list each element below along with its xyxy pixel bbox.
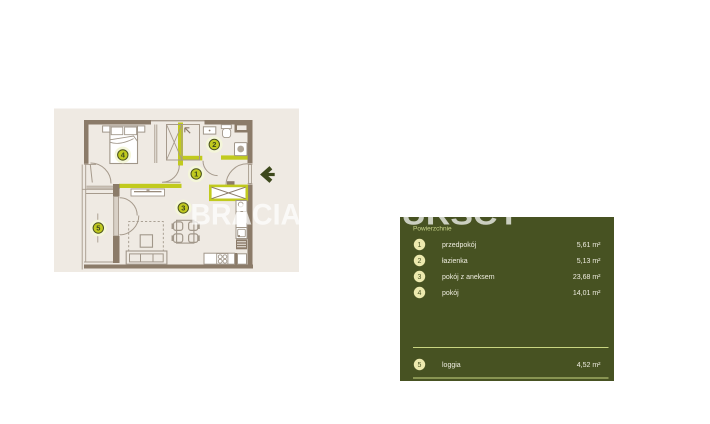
svg-text:4: 4 [418,290,422,297]
svg-text:3: 3 [181,204,185,213]
svg-text:23,68 m²: 23,68 m² [573,274,601,281]
svg-text:1: 1 [418,242,422,249]
svg-text:3: 3 [418,274,422,281]
svg-text:2: 2 [418,258,422,265]
svg-text:łazienka: łazienka [442,258,468,265]
svg-text:5,61 m²: 5,61 m² [577,242,601,249]
svg-text:5: 5 [96,224,100,233]
svg-text:pokój z aneksem: pokój z aneksem [442,274,495,281]
svg-text:SADURSCY: SADURSCY [330,198,520,231]
svg-text:2: 2 [212,140,216,149]
svg-text:loggia: loggia [442,362,461,369]
svg-text:5: 5 [418,362,422,369]
svg-text:przedpokój: przedpokój [442,242,477,249]
svg-text:1: 1 [194,170,198,179]
svg-text:14,01 m²: 14,01 m² [573,290,601,297]
svg-text:5,13 m²: 5,13 m² [577,258,601,265]
svg-text:4,52 m²: 4,52 m² [577,362,601,369]
svg-text:pokój: pokój [442,290,459,297]
svg-text:BRACIA: BRACIA [191,198,302,231]
